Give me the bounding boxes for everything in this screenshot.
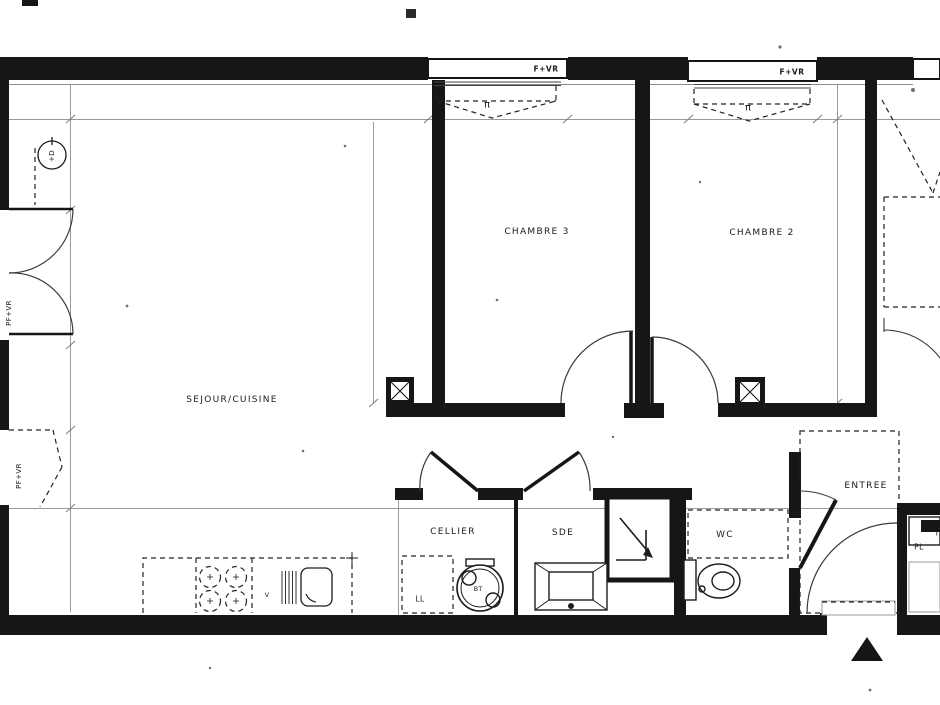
window-3-swing-dash: [882, 100, 940, 193]
counter-end-tick: [346, 552, 358, 564]
window-1-swing-dash: [437, 101, 556, 118]
window-1-opening-dash: [437, 86, 556, 101]
label-bt: BT: [474, 585, 483, 593]
label-ll: LL: [415, 595, 424, 604]
kitchen-counter-dash: [143, 558, 352, 613]
entrance-threshold: [822, 601, 895, 615]
label-pfvr-window: PF+VR: [15, 463, 23, 489]
wc-soffit-dash: [688, 510, 788, 558]
label-pfvr-door: PF+VR: [5, 300, 13, 326]
label-sde: SDE: [552, 528, 574, 538]
label-pi-1: π: [484, 100, 490, 111]
window-3: [913, 59, 940, 79]
door-chambre3: [561, 331, 633, 403]
label-chambre3: CHAMBRE 3: [504, 227, 569, 237]
kitchen-sink-unit: [282, 568, 332, 606]
toilet: [684, 560, 740, 600]
label-sejour-cuisine: SEJOUR/CUISINE: [186, 395, 278, 405]
fixtures: [38, 137, 940, 615]
door-chambre2: [652, 337, 718, 403]
label-cellier: CELLIER: [430, 527, 476, 537]
window-2-opening-dash: [694, 89, 810, 104]
door-entrance: [800, 491, 897, 613]
door-cellier: [420, 452, 478, 491]
window-2-swing-dash: [694, 104, 810, 121]
stove-center-marks: [207, 574, 239, 604]
plan-geometry: [0, 0, 940, 705]
label-chambre2: CHAMBRE 2: [729, 228, 794, 238]
label-wc: WC: [716, 530, 734, 540]
washing-machine-box: [402, 556, 453, 613]
label-pl: PL: [914, 543, 924, 552]
entrance-arrow: [851, 637, 883, 661]
bathroom-sink: [535, 563, 607, 610]
label-v: V: [265, 591, 270, 599]
floor-plan: SEJOUR/CUISINE CHAMBRE 3 CHAMBRE 2 CELLI…: [0, 0, 940, 705]
shower: [607, 497, 672, 580]
dimension-ticks: [66, 115, 842, 512]
label-tap-symbol: +D: [48, 150, 56, 162]
label-window2-fvr: F+VR: [780, 68, 805, 77]
label-entree: ENTREE: [844, 481, 887, 491]
label-tech: T: [934, 529, 939, 538]
label-window1-fvr: F+VR: [534, 65, 559, 74]
door-right-room: [884, 318, 940, 400]
entree-outline-dash: [800, 431, 899, 613]
label-pi-2: π: [745, 103, 751, 114]
door-french-left: [9, 209, 73, 334]
right-closet-dash: [884, 197, 940, 307]
door-sde: [524, 452, 590, 491]
walls: [0, 57, 940, 635]
